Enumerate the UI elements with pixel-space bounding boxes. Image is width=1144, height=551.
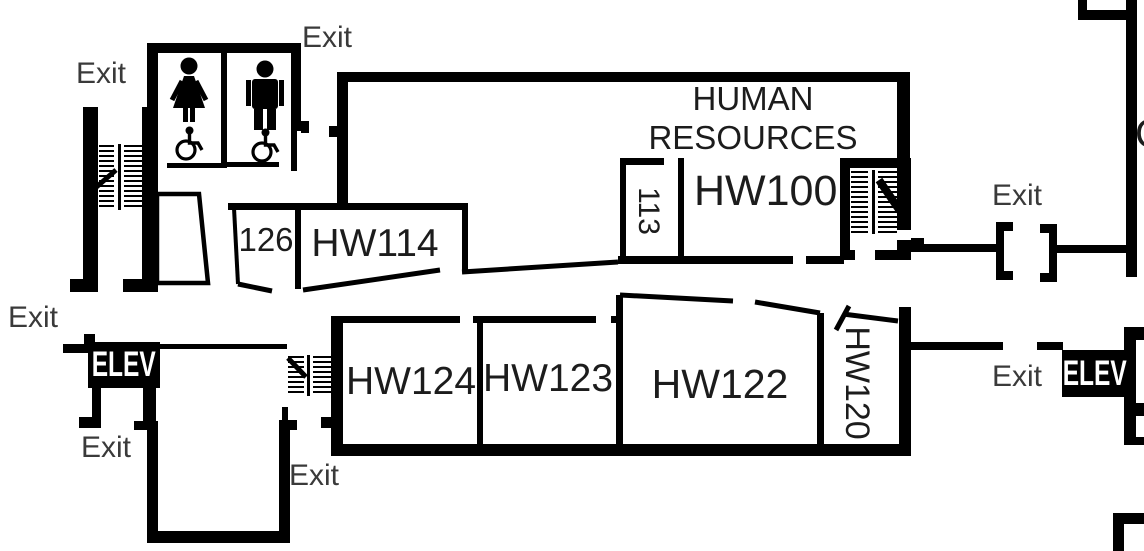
female-figure-icon [172,58,206,123]
partial-room-label-right-edge: C [1135,112,1144,157]
elevator-left: ELEV [88,342,160,388]
exit-label-top-left: Exit [76,57,126,91]
elevator-right-label: ELEV [1063,354,1127,394]
exit-label-lower-right: Exit [992,360,1042,394]
female-wheelchair-icon [177,127,202,160]
exit-label-left-corridor: Exit [8,301,58,335]
corridor-stairs-icon [288,355,336,396]
room-label-hw114: HW114 [305,224,445,265]
room-label-hw100: HW100 [694,169,834,214]
exit-label-bottom-center: Exit [289,459,339,493]
room-label-113: 113 [634,166,664,256]
male-wheelchair-icon [253,129,278,162]
left-stairwell-stairs-icon [93,144,142,210]
room-label-hw123: HW123 [478,359,618,400]
exit-label-upper-right: Exit [992,179,1042,213]
room-label-hw120: HW120 [840,318,874,448]
male-figure-icon [246,61,284,131]
exit-label-lower-left: Exit [81,431,131,465]
vestibule-outline [157,194,208,283]
floorplan-geometry [0,0,1144,551]
room-label-hw124: HW124 [341,362,481,403]
elevator-right: ELEV [1062,350,1127,397]
room-label-hw122: HW122 [650,363,790,406]
floorplan-canvas: Exit Exit Exit Exit Exit Exit Exit HUMAN… [0,0,1144,551]
exit-label-restrooms-top: Exit [302,21,352,55]
room-label-126: 126 [236,223,296,258]
door-bracket-icon [996,222,1057,282]
walls [63,0,1144,551]
elevator-left-label: ELEV [92,345,156,385]
hr-stairs-icon [851,170,900,234]
department-label: HUMAN RESOURCES [628,80,878,158]
